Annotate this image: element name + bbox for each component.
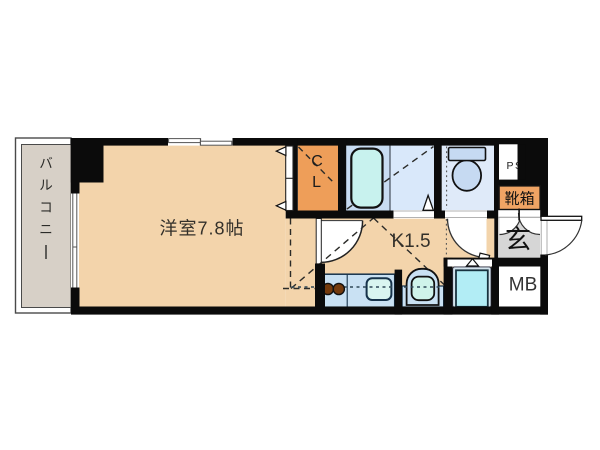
svg-text:MB: MB xyxy=(509,275,538,296)
svg-text:ル: ル xyxy=(39,178,53,193)
svg-text:バ: バ xyxy=(39,156,53,171)
svg-text:玄: 玄 xyxy=(505,225,531,255)
svg-text:C: C xyxy=(311,153,323,170)
svg-text:靴箱: 靴箱 xyxy=(505,191,535,208)
svg-text:コ: コ xyxy=(39,200,53,215)
svg-text:ニ: ニ xyxy=(39,222,53,237)
svg-text:K1.5: K1.5 xyxy=(391,231,430,252)
svg-text:L: L xyxy=(312,174,321,191)
svg-text:洋室7.8帖: 洋室7.8帖 xyxy=(159,219,244,239)
